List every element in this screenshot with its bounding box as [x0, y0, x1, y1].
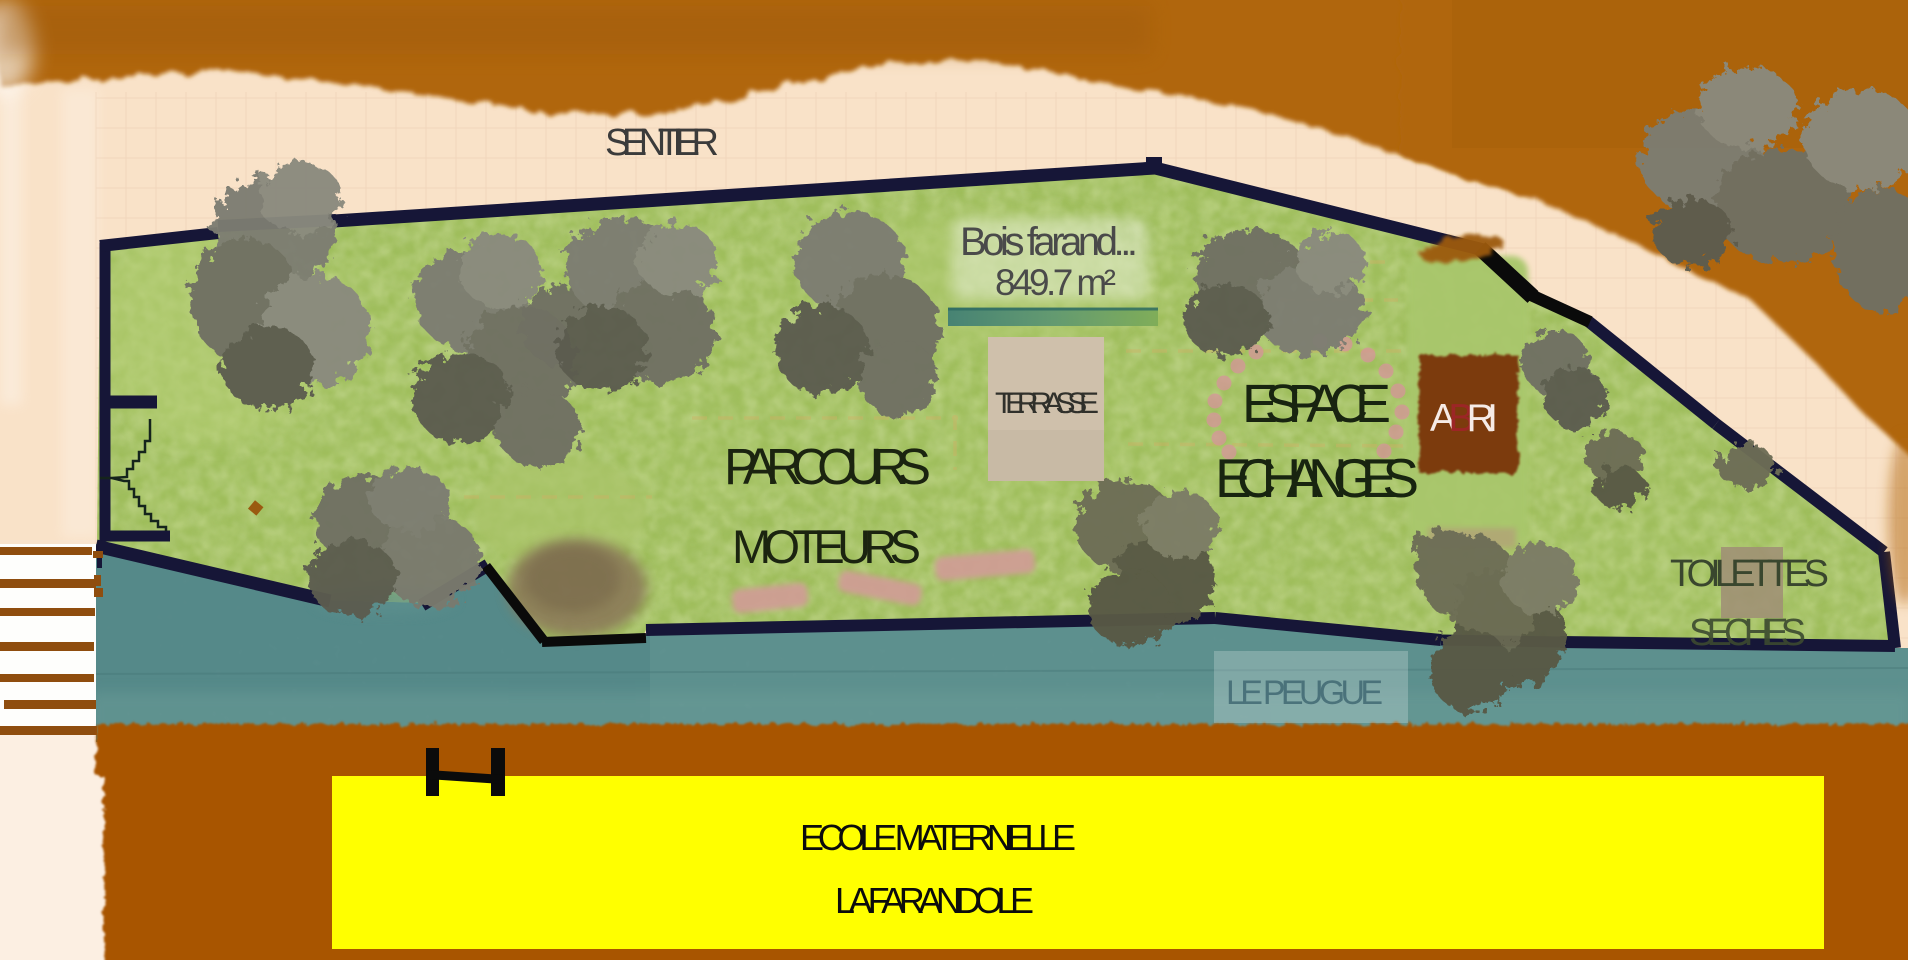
svg-text:SENTIER: SENTIER — [605, 122, 719, 164]
svg-text:ABRI: ABRI — [1430, 397, 1498, 440]
svg-text:ECHANGES: ECHANGES — [1215, 447, 1419, 509]
svg-text:LE PEUGUE: LE PEUGUE — [1226, 674, 1383, 712]
svg-text:PARCOURS: PARCOURS — [724, 438, 931, 495]
svg-text:SECHES: SECHES — [1689, 612, 1806, 654]
svg-text:TERRASSE: TERRASSE — [995, 387, 1099, 420]
svg-text:TOILETTES: TOILETTES — [1670, 553, 1829, 595]
svg-text:LA FARANDOLE: LA FARANDOLE — [835, 880, 1034, 921]
svg-text:Bois farand...: Bois farand... — [960, 220, 1138, 264]
svg-text:849.7 m²: 849.7 m² — [995, 262, 1116, 303]
svg-text:ECOLE MATERNELLE: ECOLE MATERNELLE — [800, 817, 1076, 858]
svg-text:MOTEURS: MOTEURS — [732, 520, 921, 573]
svg-text:ESPACE: ESPACE — [1242, 374, 1391, 434]
